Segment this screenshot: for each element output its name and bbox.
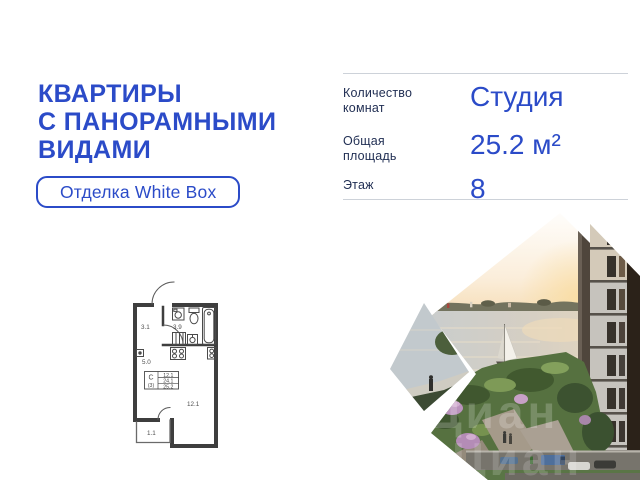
flyer-graphics: 3.1 3.9 5.0 12.1 1.1 С (3) 12.1 24.1 25.… [0, 0, 640, 480]
room-area-bathroom: 3.9 [173, 324, 182, 331]
fragment-person [429, 375, 433, 391]
floor-plan: 3.1 3.9 5.0 12.1 1.1 С (3) 12.1 24.1 25.… [135, 282, 216, 446]
svg-text:Циан: Циан [428, 386, 559, 438]
building-dark-side [627, 228, 640, 480]
plan-fixtures [137, 308, 217, 360]
svg-text:Циан: Циан [452, 433, 583, 480]
car-dark [594, 461, 616, 469]
plan-type-index: (3) [148, 383, 155, 389]
room-area-living: 12.1 [187, 401, 200, 408]
plan-area-total: 25.2 [163, 384, 173, 390]
plan-type: С [148, 375, 153, 382]
balcony-door-arc [158, 408, 170, 420]
plan-info-box: С (3) 12.1 24.1 25.2 [145, 372, 179, 391]
room-area-balcony: 1.1 [147, 430, 156, 437]
room-area-hallway: 3.1 [141, 324, 150, 331]
toilet-icon [189, 308, 199, 313]
entrance-door-arc [152, 282, 174, 304]
room-area-kitchen: 5.0 [142, 359, 151, 366]
